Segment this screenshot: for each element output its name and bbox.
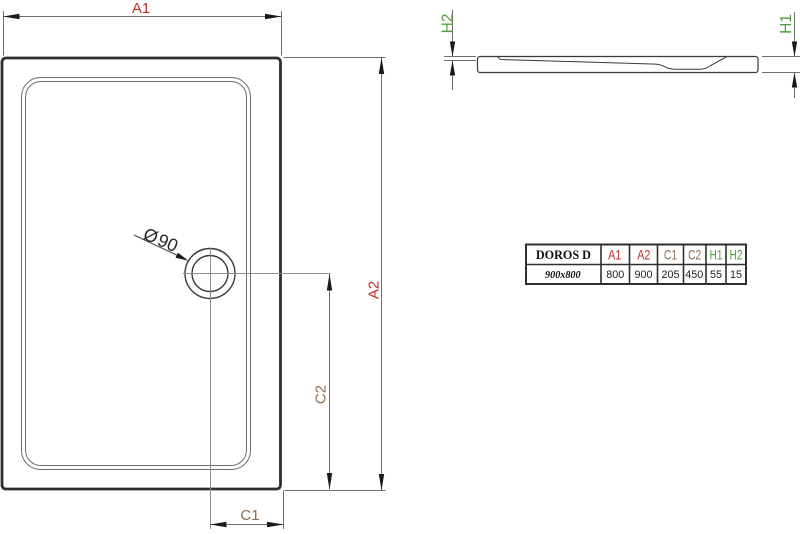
svg-text:DOROS D: DOROS D bbox=[536, 248, 591, 262]
svg-text:900: 900 bbox=[634, 269, 652, 281]
svg-text:205: 205 bbox=[661, 269, 679, 281]
svg-text:H2: H2 bbox=[730, 246, 743, 262]
svg-text:450: 450 bbox=[685, 269, 703, 281]
svg-text:C2: C2 bbox=[688, 246, 701, 262]
svg-text:H1: H1 bbox=[710, 246, 723, 262]
svg-text:C1: C1 bbox=[664, 246, 677, 262]
svg-text:A1: A1 bbox=[132, 0, 150, 17]
svg-text:55: 55 bbox=[710, 269, 722, 281]
svg-text:A1: A1 bbox=[608, 246, 621, 262]
svg-text:C1: C1 bbox=[240, 507, 259, 524]
svg-text:H1: H1 bbox=[778, 14, 795, 34]
svg-text:C2: C2 bbox=[313, 385, 330, 404]
svg-text:800: 800 bbox=[606, 269, 624, 281]
svg-text:900x800: 900x800 bbox=[545, 270, 581, 281]
svg-text:15: 15 bbox=[730, 269, 742, 281]
svg-text:A2: A2 bbox=[637, 246, 650, 262]
svg-text:H2: H2 bbox=[439, 14, 456, 34]
svg-text:A2: A2 bbox=[366, 281, 383, 299]
